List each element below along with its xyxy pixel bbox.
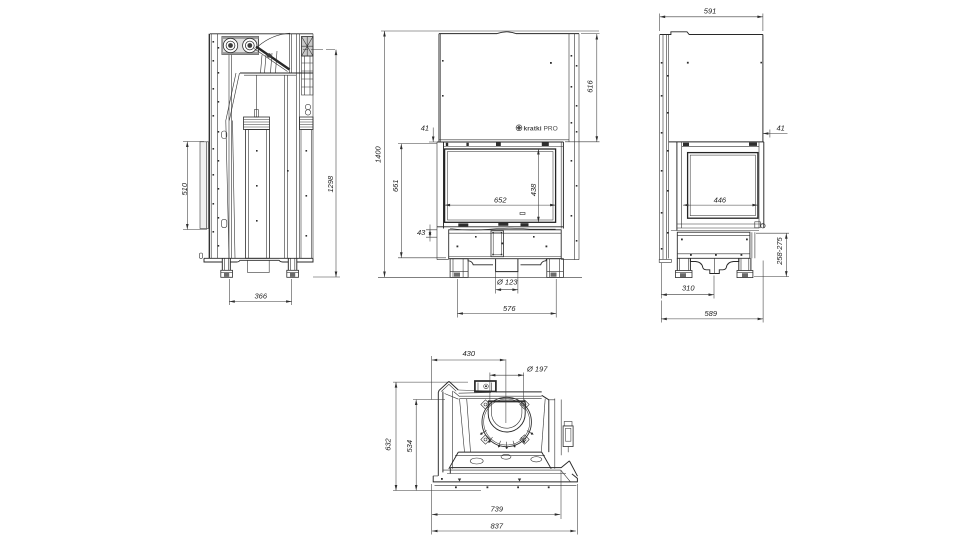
svg-text:438: 438 (529, 183, 538, 196)
svg-text:632: 632 (384, 437, 393, 450)
svg-text:kratki: kratki (524, 125, 542, 132)
svg-text:534: 534 (405, 440, 414, 453)
svg-text:837: 837 (491, 521, 504, 530)
svg-text:589: 589 (705, 309, 718, 318)
svg-text:616: 616 (585, 79, 594, 92)
svg-text:661: 661 (391, 179, 400, 192)
svg-text:1298: 1298 (326, 175, 335, 193)
svg-text:591: 591 (704, 6, 717, 15)
svg-text:310: 310 (682, 284, 695, 293)
svg-text:510: 510 (180, 182, 189, 195)
svg-text:43: 43 (417, 228, 426, 237)
svg-text:652: 652 (494, 196, 507, 205)
svg-text:446: 446 (714, 196, 727, 205)
svg-text:366: 366 (255, 292, 268, 301)
svg-text:41: 41 (777, 123, 785, 132)
svg-text:258-275: 258-275 (775, 236, 784, 265)
svg-text:1400: 1400 (374, 145, 383, 163)
svg-text:PRO: PRO (544, 125, 558, 132)
svg-text:41: 41 (421, 124, 429, 133)
svg-text:Ø 197: Ø 197 (526, 365, 548, 374)
svg-text:Ø 123: Ø 123 (496, 278, 518, 287)
svg-text:576: 576 (503, 304, 516, 313)
svg-text:739: 739 (491, 505, 504, 514)
svg-text:430: 430 (463, 349, 476, 358)
